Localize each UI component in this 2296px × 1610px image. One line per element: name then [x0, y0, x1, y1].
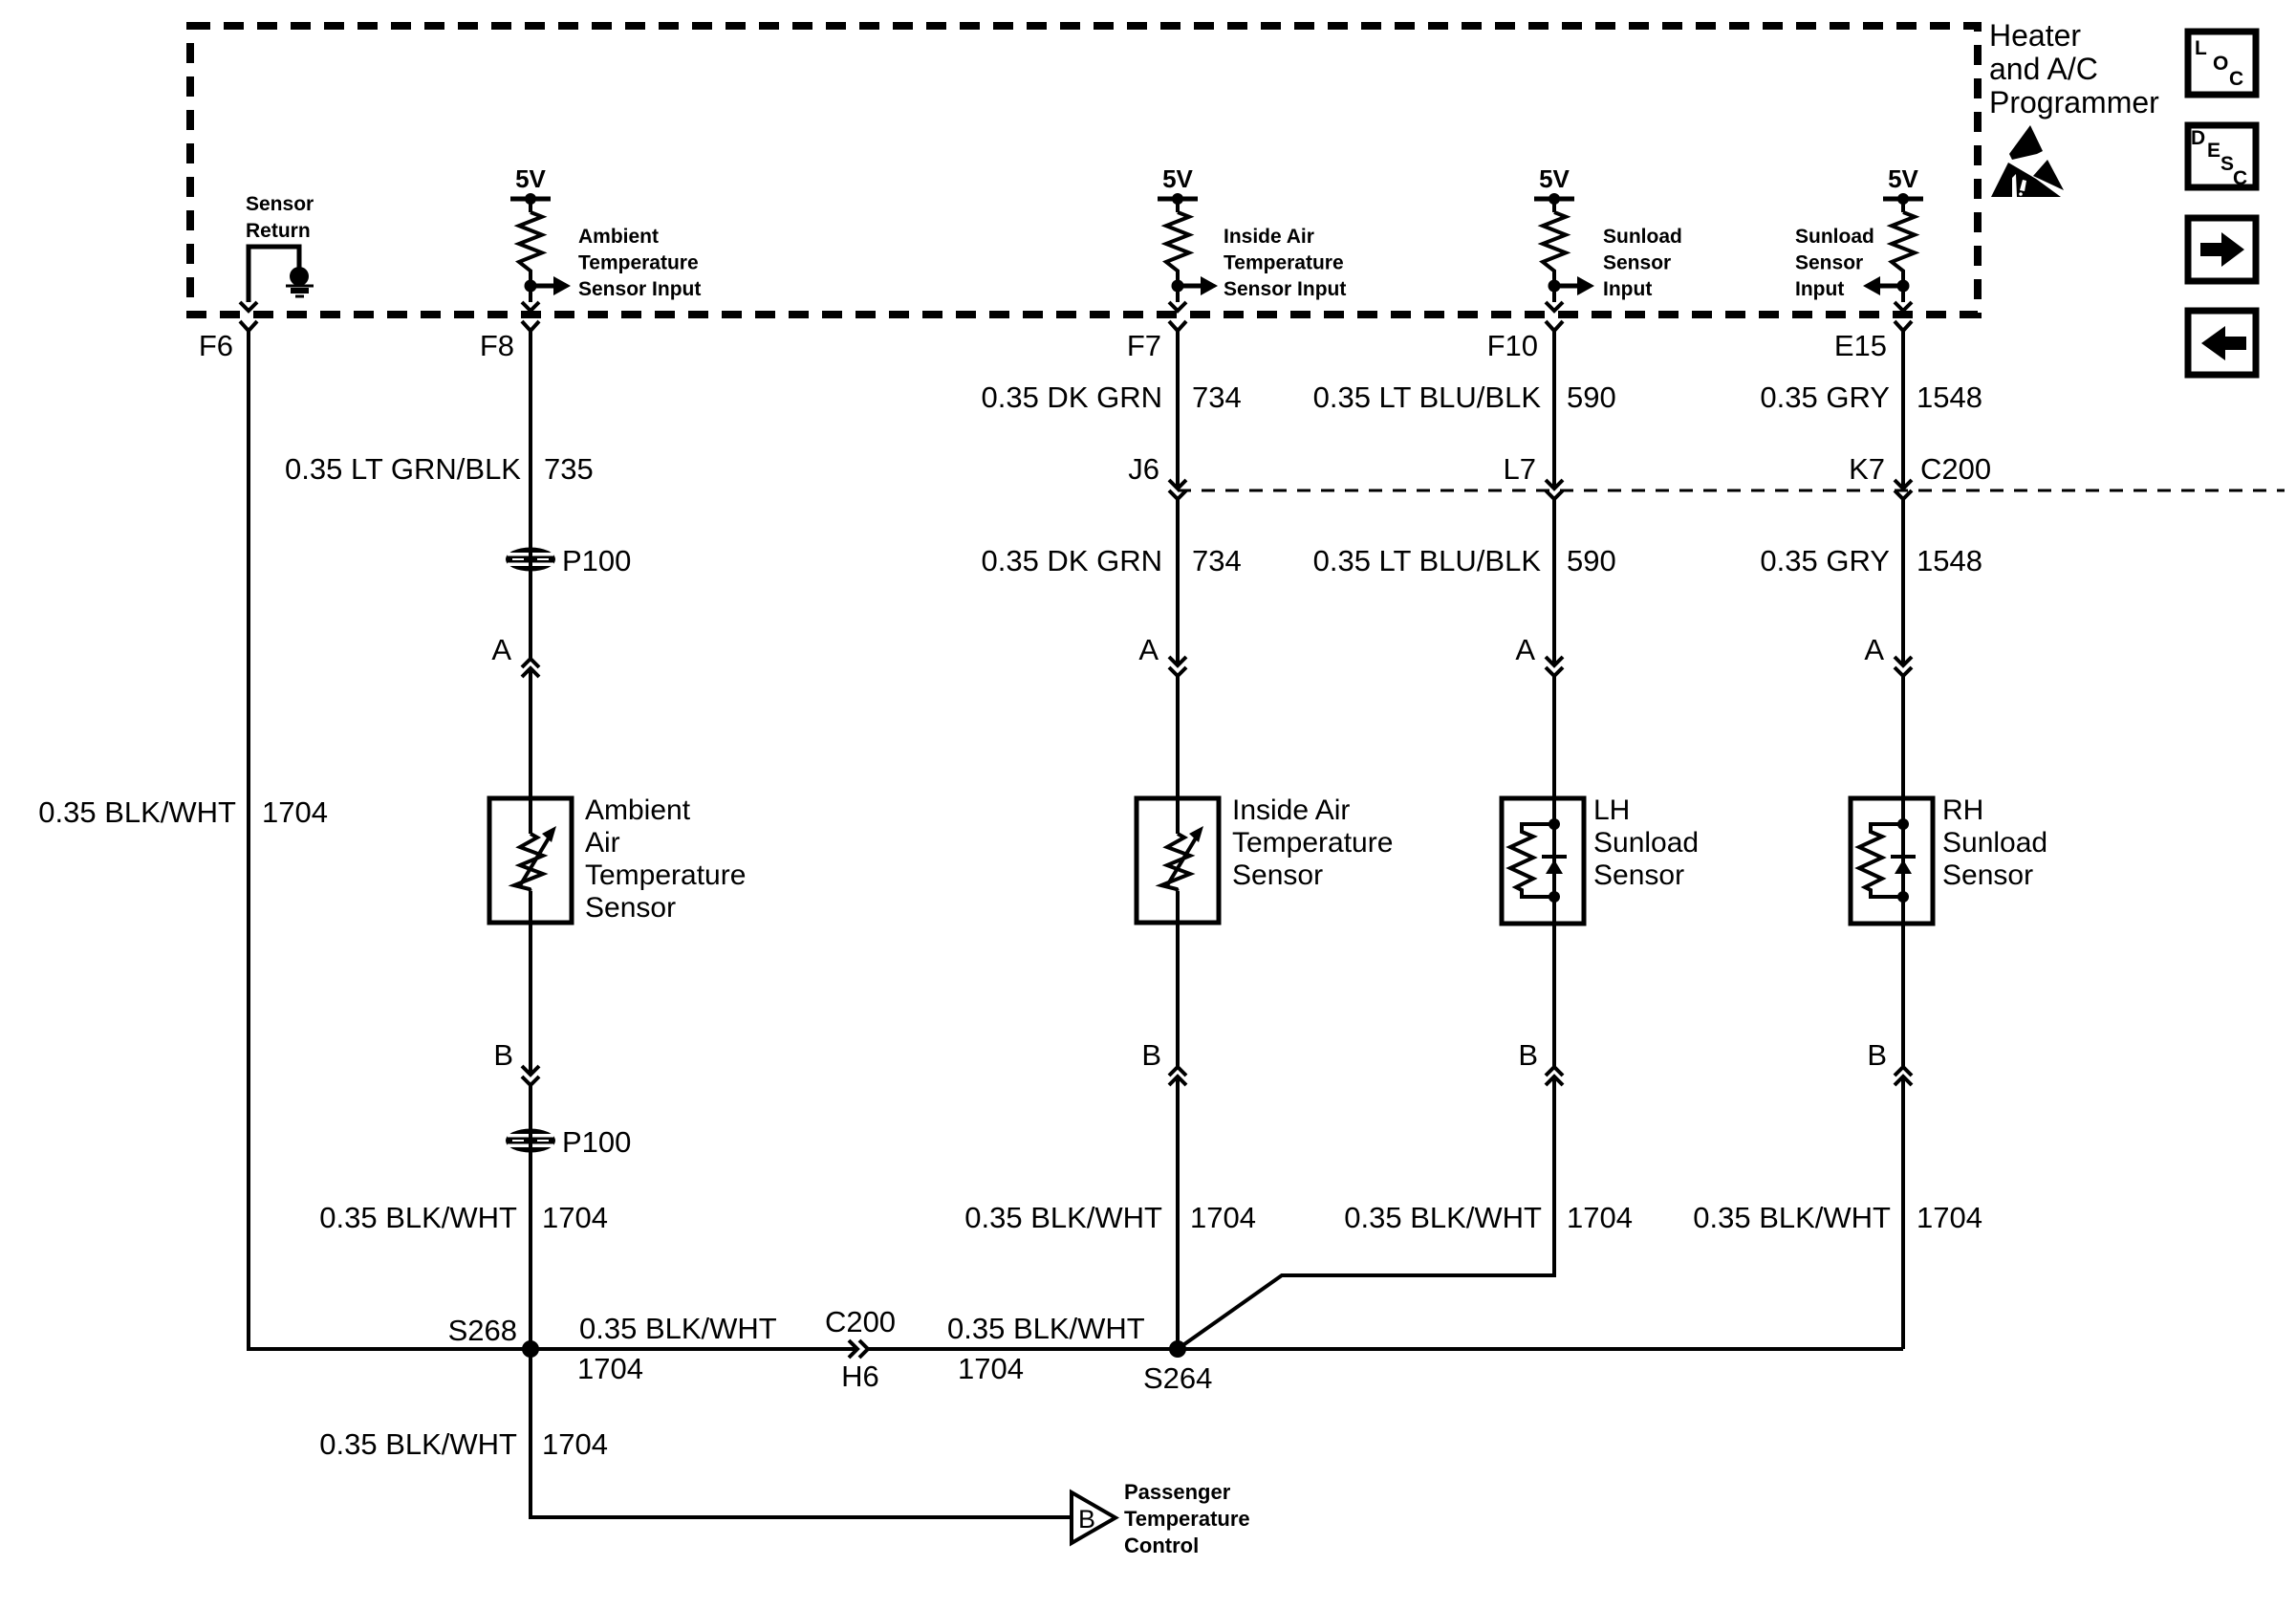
svg-text:Temperature: Temperature	[1124, 1507, 1250, 1531]
svg-text:0.35 DK GRN: 0.35 DK GRN	[981, 381, 1162, 414]
svg-text:L7: L7	[1504, 452, 1536, 486]
svg-text:1704: 1704	[958, 1352, 1024, 1385]
svg-text:0.35 BLK/WHT: 0.35 BLK/WHT	[1693, 1201, 1891, 1234]
svg-text:Inside Air: Inside Air	[1224, 226, 1314, 248]
svg-text:0.35 GRY: 0.35 GRY	[1760, 381, 1890, 414]
svg-text:RH: RH	[1942, 794, 1983, 826]
svg-text:1704: 1704	[542, 1201, 608, 1234]
svg-text:E: E	[2207, 140, 2220, 162]
svg-text:F6: F6	[199, 329, 233, 362]
svg-text:Sunload: Sunload	[1603, 226, 1682, 248]
svg-text:5V: 5V	[515, 164, 546, 193]
svg-text:Sunload: Sunload	[1795, 226, 1874, 248]
svg-text:735: 735	[544, 452, 594, 486]
svg-text:Temperature: Temperature	[1224, 252, 1344, 274]
svg-text:P100: P100	[562, 1125, 631, 1159]
svg-text:Programmer: Programmer	[1989, 85, 2159, 120]
svg-text:K7: K7	[1849, 452, 1885, 486]
svg-text:C: C	[2229, 68, 2243, 90]
svg-text:5V: 5V	[1888, 164, 1918, 193]
svg-text:F10: F10	[1487, 329, 1538, 362]
svg-text:J6: J6	[1128, 452, 1159, 486]
svg-text:Sensor: Sensor	[585, 892, 676, 924]
svg-text:1704: 1704	[1917, 1201, 1982, 1234]
svg-text:B: B	[493, 1038, 513, 1072]
svg-text:B: B	[1141, 1038, 1161, 1072]
svg-text:A: A	[1864, 633, 1884, 666]
svg-text:0.35 LT BLU/BLK: 0.35 LT BLU/BLK	[1313, 544, 1542, 577]
svg-text:0.35 LT BLU/BLK: 0.35 LT BLU/BLK	[1313, 381, 1542, 414]
svg-text:A: A	[1138, 633, 1159, 666]
svg-text:Temperature: Temperature	[585, 859, 746, 891]
svg-text:Inside Air: Inside Air	[1232, 794, 1350, 826]
svg-text:1704: 1704	[1567, 1201, 1633, 1234]
svg-text:LH: LH	[1593, 794, 1630, 826]
svg-text:1704: 1704	[1190, 1201, 1256, 1234]
svg-text:Sensor: Sensor	[1593, 859, 1684, 891]
svg-text:0.35 BLK/WHT: 0.35 BLK/WHT	[1344, 1201, 1542, 1234]
svg-text:0.35 GRY: 0.35 GRY	[1760, 544, 1890, 577]
svg-text:C200: C200	[1920, 452, 1991, 486]
svg-text:Air: Air	[585, 827, 620, 859]
svg-text:Sensor Input: Sensor Input	[578, 278, 701, 300]
svg-text:0.35 LT GRN/BLK: 0.35 LT GRN/BLK	[285, 452, 521, 486]
svg-text:H6: H6	[841, 1360, 879, 1393]
svg-text:Temperature: Temperature	[578, 252, 699, 274]
svg-text:1548: 1548	[1917, 381, 1982, 414]
svg-text:5V: 5V	[1162, 164, 1193, 193]
svg-text:and A/C: and A/C	[1989, 52, 2098, 86]
svg-text:1704: 1704	[542, 1427, 608, 1461]
svg-text:Control: Control	[1124, 1534, 1199, 1557]
svg-text:C200: C200	[825, 1305, 896, 1338]
svg-text:O: O	[2213, 53, 2228, 75]
svg-text:0.35 BLK/WHT: 0.35 BLK/WHT	[38, 795, 236, 829]
svg-text:Input: Input	[1603, 278, 1652, 300]
svg-text:S: S	[2220, 153, 2234, 175]
svg-text:Sensor: Sensor	[246, 193, 314, 215]
svg-text:P100: P100	[562, 544, 631, 577]
svg-text:Return: Return	[246, 220, 311, 242]
svg-text:Sensor: Sensor	[1795, 252, 1863, 274]
svg-text:0.35 BLK/WHT: 0.35 BLK/WHT	[319, 1201, 517, 1234]
svg-text:Sensor: Sensor	[1942, 859, 2033, 891]
svg-text:0.35 BLK/WHT: 0.35 BLK/WHT	[319, 1427, 517, 1461]
svg-text:1704: 1704	[262, 795, 328, 829]
svg-text:Sensor Input: Sensor Input	[1224, 278, 1346, 300]
svg-text:0.35 DK GRN: 0.35 DK GRN	[981, 544, 1162, 577]
svg-text:734: 734	[1192, 544, 1242, 577]
svg-text:Sensor: Sensor	[1232, 859, 1323, 891]
svg-text:Temperature: Temperature	[1232, 827, 1393, 859]
svg-text:Ambient: Ambient	[578, 226, 659, 248]
svg-text:C: C	[2233, 167, 2247, 189]
svg-text:Heater: Heater	[1989, 18, 2081, 53]
svg-text:F8: F8	[480, 329, 514, 362]
svg-text:F7: F7	[1127, 329, 1161, 362]
svg-text:Sunload: Sunload	[1942, 827, 2047, 859]
svg-text:L: L	[2195, 37, 2207, 59]
svg-text:S268: S268	[448, 1314, 517, 1347]
svg-text:B: B	[1867, 1038, 1887, 1072]
svg-text:B: B	[1518, 1038, 1538, 1072]
svg-text:590: 590	[1567, 381, 1616, 414]
svg-text:E15: E15	[1834, 329, 1887, 362]
svg-text:5V: 5V	[1539, 164, 1570, 193]
svg-text:0.35 BLK/WHT: 0.35 BLK/WHT	[579, 1312, 777, 1345]
svg-text:1548: 1548	[1917, 544, 1982, 577]
svg-text:Input: Input	[1795, 278, 1844, 300]
svg-text:0.35 BLK/WHT: 0.35 BLK/WHT	[947, 1312, 1145, 1345]
svg-text:590: 590	[1567, 544, 1616, 577]
svg-text:1704: 1704	[577, 1352, 643, 1385]
svg-text:734: 734	[1192, 381, 1242, 414]
svg-text:Passenger: Passenger	[1124, 1480, 1231, 1504]
svg-text:A: A	[491, 633, 511, 666]
svg-text:S264: S264	[1143, 1361, 1212, 1395]
svg-text:Sensor: Sensor	[1603, 252, 1671, 274]
svg-text:Sunload: Sunload	[1593, 827, 1699, 859]
svg-text:D: D	[2191, 127, 2205, 149]
svg-text:A: A	[1515, 633, 1535, 666]
svg-text:Ambient: Ambient	[585, 794, 691, 826]
svg-text:0.35 BLK/WHT: 0.35 BLK/WHT	[964, 1201, 1162, 1234]
svg-text:B: B	[1078, 1505, 1095, 1534]
